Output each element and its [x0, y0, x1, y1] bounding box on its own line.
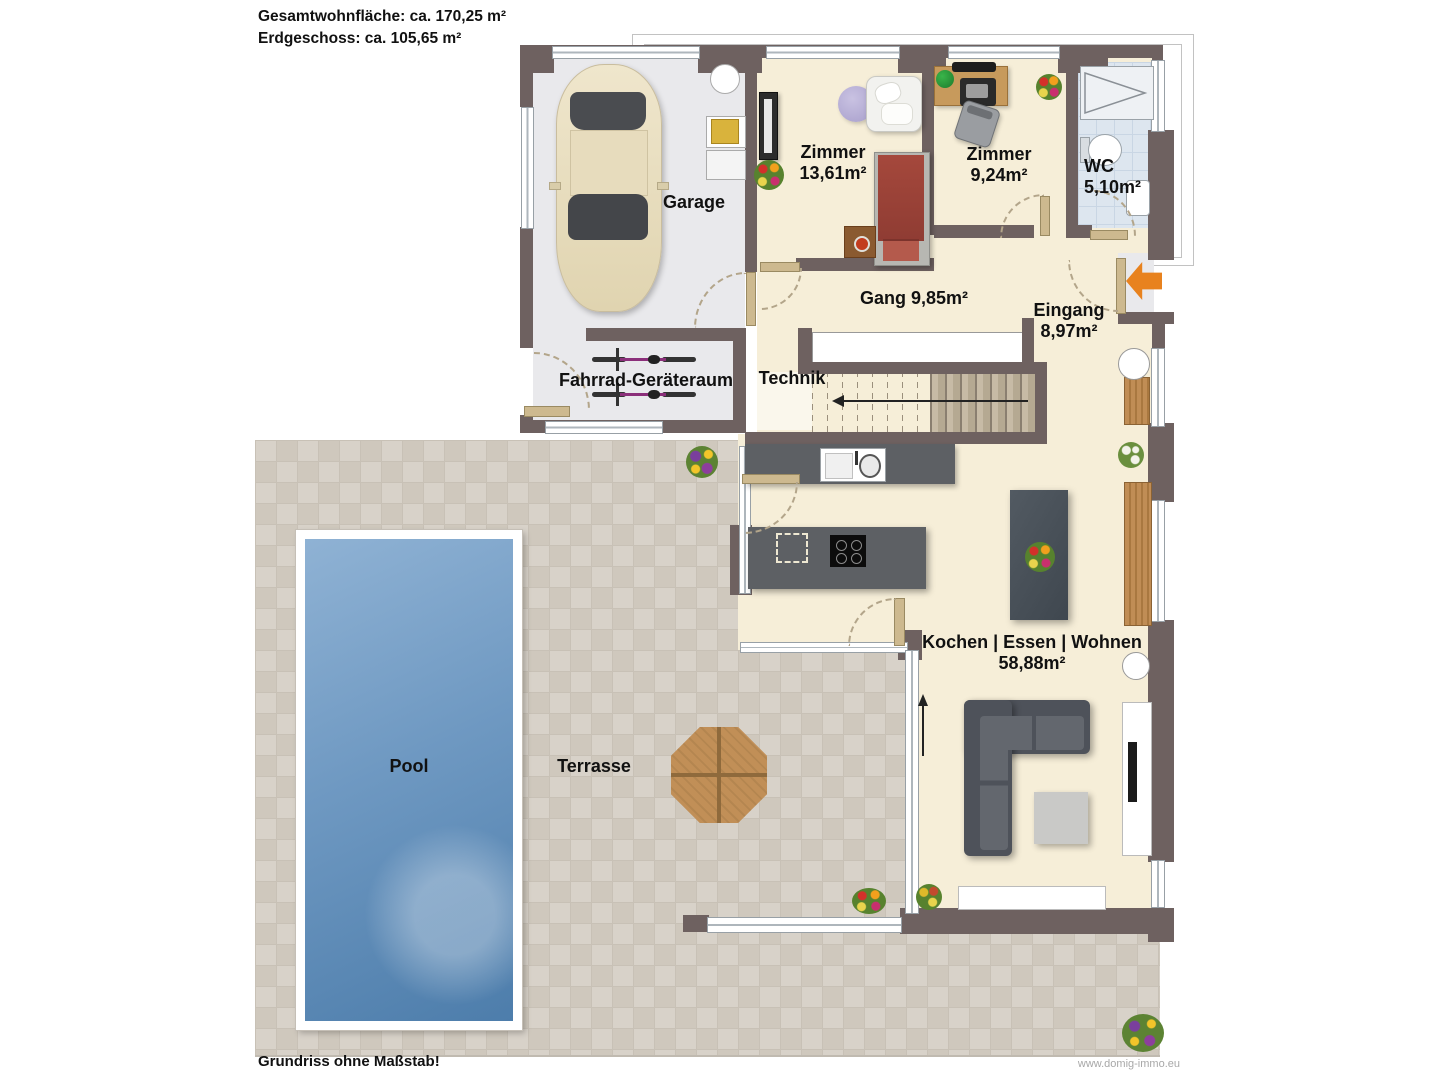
plant-icon — [1025, 542, 1055, 572]
bicycle-icon — [592, 346, 696, 372]
room-label-gang: Gang 9,85m² — [860, 288, 968, 309]
plant-icon — [754, 160, 784, 190]
round-table-icon — [1118, 348, 1150, 380]
wall — [1148, 130, 1174, 260]
coffee-table-icon — [1034, 792, 1088, 844]
wall — [1148, 908, 1174, 942]
plant-icon — [852, 888, 886, 914]
car-icon — [556, 64, 660, 310]
tv-lowboard — [1122, 702, 1152, 856]
header-ground-floor: Erdgeschoss: ca. 105,65 m² — [258, 28, 506, 50]
wall — [745, 432, 1047, 444]
window — [1151, 860, 1165, 908]
plant-icon — [1118, 442, 1144, 468]
boiler-icon — [710, 64, 740, 94]
armchair-icon — [866, 76, 922, 132]
wall — [1022, 318, 1034, 370]
monitor-icon — [952, 62, 996, 72]
wall — [733, 330, 746, 433]
room-label-eingang: Eingang8,97m² — [1034, 300, 1105, 342]
wall — [520, 227, 533, 348]
room-label-wc: WC5,10m² — [1084, 156, 1141, 198]
wall — [798, 362, 1047, 374]
room-label-pool: Pool — [390, 756, 429, 777]
box-icon — [711, 119, 739, 144]
window — [905, 650, 919, 914]
door-leaf — [746, 272, 756, 326]
wall — [745, 250, 757, 272]
room-label-zimmer2: Zimmer9,24m² — [966, 144, 1031, 186]
plant-icon — [686, 446, 718, 478]
wall — [683, 915, 709, 932]
room-label-wohnen: Kochen | Essen | Wohnen58,88m² — [922, 632, 1142, 674]
window — [1151, 500, 1165, 622]
window — [552, 46, 700, 59]
window — [521, 107, 534, 229]
desk-lamp-icon — [936, 70, 954, 88]
up-arrow-icon — [916, 694, 930, 758]
room-label-technik: Technik — [759, 368, 826, 389]
bed-icon — [874, 152, 930, 266]
sideboard — [1124, 377, 1150, 425]
window — [948, 46, 1060, 59]
wardrobe — [759, 92, 778, 160]
wall — [1066, 225, 1092, 238]
wall — [586, 328, 746, 341]
pool — [296, 530, 522, 1030]
wall — [1152, 318, 1165, 350]
bench — [958, 886, 1106, 910]
stairs-arrow-icon — [832, 394, 1028, 408]
plant-icon — [1036, 74, 1062, 100]
floor-plan-canvas: Gesamtwohnfläche: ca. 170,25 m² Erdgesch… — [0, 0, 1436, 1077]
room-label-garage: Garage — [663, 192, 725, 213]
kitchen-sink-icon — [820, 448, 886, 482]
plant-icon — [1122, 1014, 1164, 1052]
wall — [745, 45, 757, 250]
room-label-zimmer1: Zimmer13,61m² — [799, 142, 866, 184]
sliding-door — [707, 917, 902, 933]
header-total-area: Gesamtwohnfläche: ca. 170,25 m² — [258, 6, 506, 28]
island-sink-outline — [776, 533, 808, 563]
wall — [1118, 312, 1174, 324]
cooktop-icon — [830, 535, 866, 567]
tv-icon — [1128, 742, 1137, 802]
wall — [1066, 58, 1078, 238]
window — [766, 46, 900, 59]
room-label-fahrrad: Fahrrad-Geräteraum — [559, 370, 733, 391]
window — [1151, 348, 1165, 427]
plant-icon — [916, 884, 942, 910]
nightstand — [844, 226, 876, 258]
terrace-table-icon — [671, 727, 767, 823]
shower-icon — [1080, 66, 1154, 120]
sideboard — [1124, 482, 1152, 626]
wardrobe — [812, 332, 1034, 364]
garage-door — [545, 421, 663, 434]
watermark: www.domig-immo.eu — [1078, 1058, 1180, 1070]
footer-note: Grundriss ohne Maßstab! — [258, 1053, 440, 1070]
wall — [900, 908, 1172, 934]
wall — [520, 45, 533, 107]
shelf — [706, 150, 746, 180]
room-label-terrasse: Terrasse — [557, 756, 631, 777]
